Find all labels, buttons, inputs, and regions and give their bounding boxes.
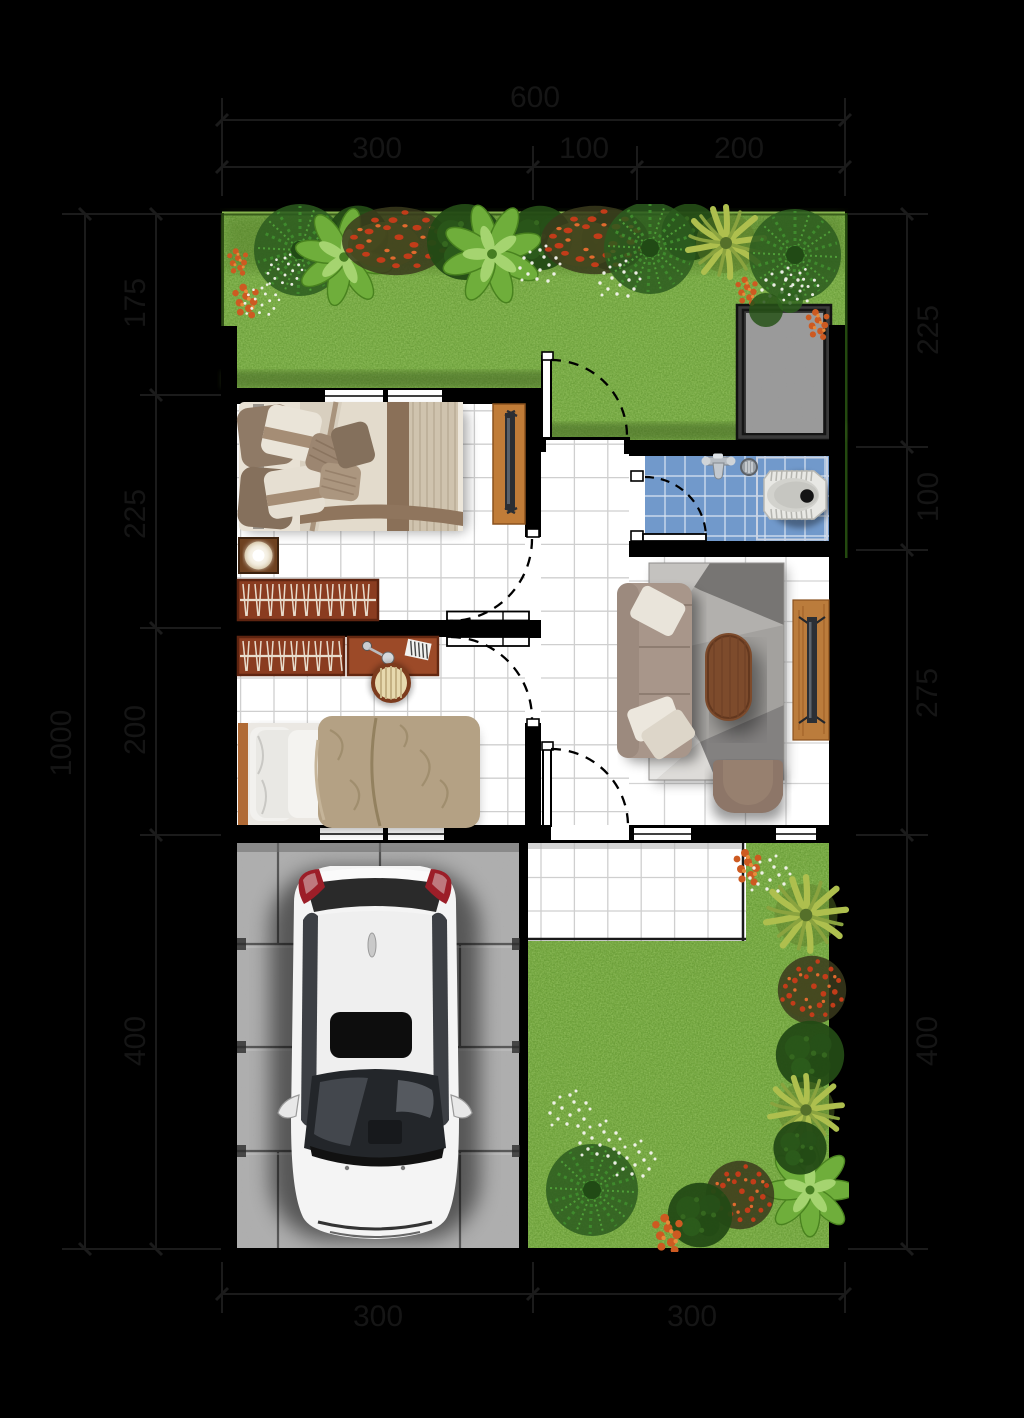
- svg-text:200: 200: [119, 705, 152, 755]
- svg-text:200: 200: [714, 132, 764, 165]
- svg-text:600: 600: [510, 81, 560, 114]
- svg-text:225: 225: [119, 489, 152, 539]
- svg-text:1000: 1000: [45, 710, 78, 777]
- svg-text:100: 100: [559, 132, 609, 165]
- svg-text:275: 275: [911, 668, 944, 718]
- svg-text:300: 300: [352, 132, 402, 165]
- svg-text:300: 300: [667, 1300, 717, 1333]
- svg-text:400: 400: [119, 1016, 152, 1066]
- svg-text:100: 100: [912, 472, 945, 522]
- svg-text:175: 175: [119, 278, 152, 328]
- svg-text:225: 225: [912, 305, 945, 355]
- svg-text:400: 400: [911, 1016, 944, 1066]
- svg-text:300: 300: [353, 1300, 403, 1333]
